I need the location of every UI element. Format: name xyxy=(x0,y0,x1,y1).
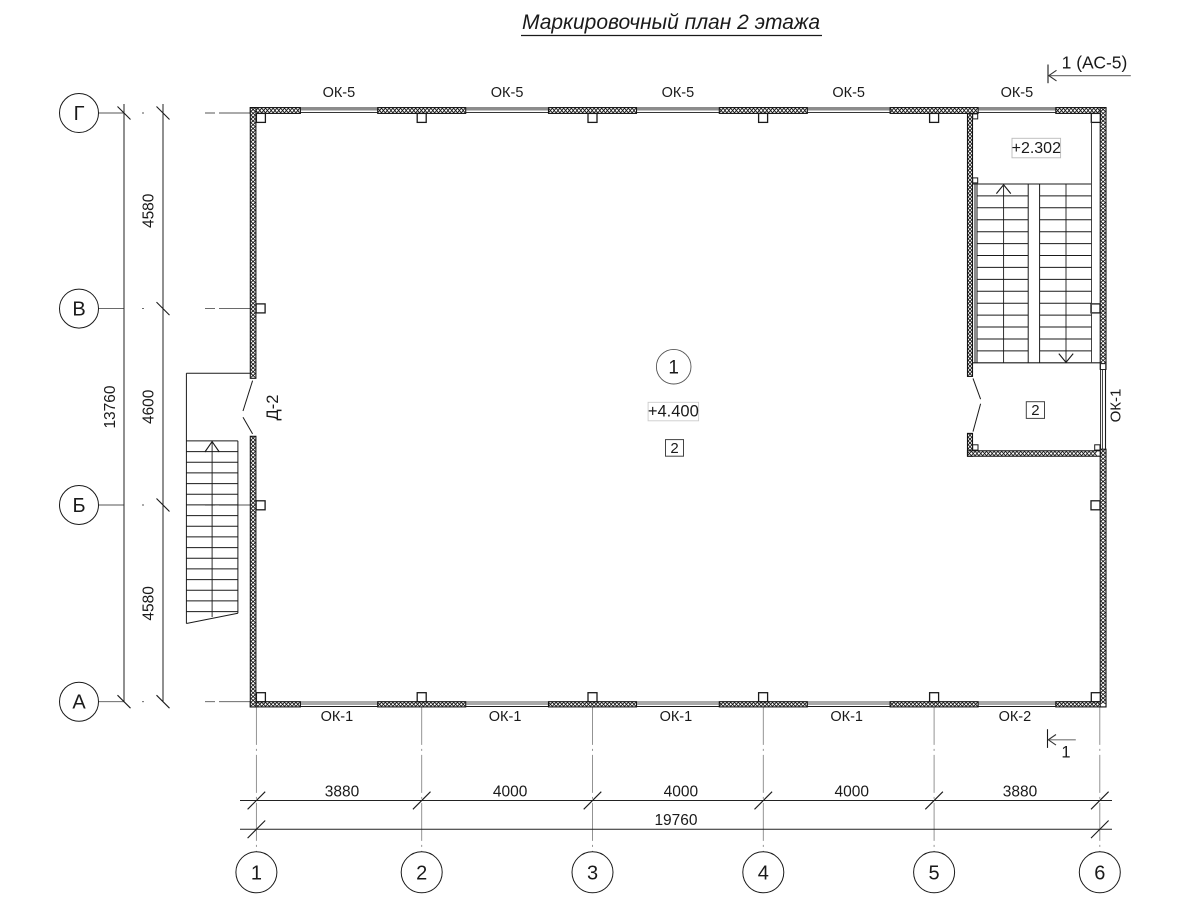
svg-text:А: А xyxy=(72,692,86,714)
svg-text:3880: 3880 xyxy=(1003,784,1038,801)
svg-text:В: В xyxy=(72,299,85,321)
svg-text:4580: 4580 xyxy=(141,193,158,228)
svg-text:ОК-1: ОК-1 xyxy=(830,709,863,725)
svg-text:ОК-5: ОК-5 xyxy=(662,85,695,101)
svg-text:ОК-5: ОК-5 xyxy=(1001,85,1034,101)
svg-text:3880: 3880 xyxy=(325,784,360,801)
svg-text:4: 4 xyxy=(758,862,769,884)
svg-text:ОК-5: ОК-5 xyxy=(491,85,524,101)
svg-text:4000: 4000 xyxy=(493,784,528,801)
svg-text:ОК-1: ОК-1 xyxy=(660,709,693,725)
svg-text:13760: 13760 xyxy=(102,385,119,428)
svg-text:4580: 4580 xyxy=(141,586,158,621)
svg-text:ОК-5: ОК-5 xyxy=(832,85,865,101)
svg-text:ОК-2: ОК-2 xyxy=(999,709,1032,725)
svg-text:4000: 4000 xyxy=(664,784,699,801)
svg-text:6: 6 xyxy=(1094,862,1105,884)
svg-text:2: 2 xyxy=(1031,402,1039,419)
svg-text:1: 1 xyxy=(251,862,262,884)
svg-text:2: 2 xyxy=(670,440,678,457)
svg-text:ОК-5: ОК-5 xyxy=(323,85,356,101)
svg-text:ОК-1: ОК-1 xyxy=(489,709,522,725)
svg-text:Д-2: Д-2 xyxy=(264,395,282,421)
svg-text:ОК-1: ОК-1 xyxy=(1108,389,1125,423)
svg-text:1: 1 xyxy=(668,358,679,379)
svg-text:2: 2 xyxy=(416,862,427,884)
svg-text:4600: 4600 xyxy=(141,389,158,424)
svg-text:Б: Б xyxy=(72,495,85,517)
svg-text:1: 1 xyxy=(1061,744,1070,762)
svg-text:1 (АС-5): 1 (АС-5) xyxy=(1062,53,1128,73)
svg-text:19760: 19760 xyxy=(654,812,697,829)
svg-text:4000: 4000 xyxy=(834,784,869,801)
svg-text:5: 5 xyxy=(929,862,940,884)
svg-text:ОК-1: ОК-1 xyxy=(321,709,354,725)
svg-text:+2.302: +2.302 xyxy=(1012,140,1061,157)
svg-text:Маркировочный план 2 этажа: Маркировочный план 2 этажа xyxy=(522,11,820,34)
svg-text:+4.400: +4.400 xyxy=(648,403,699,421)
svg-text:3: 3 xyxy=(587,862,598,884)
svg-text:Г: Г xyxy=(74,103,85,125)
